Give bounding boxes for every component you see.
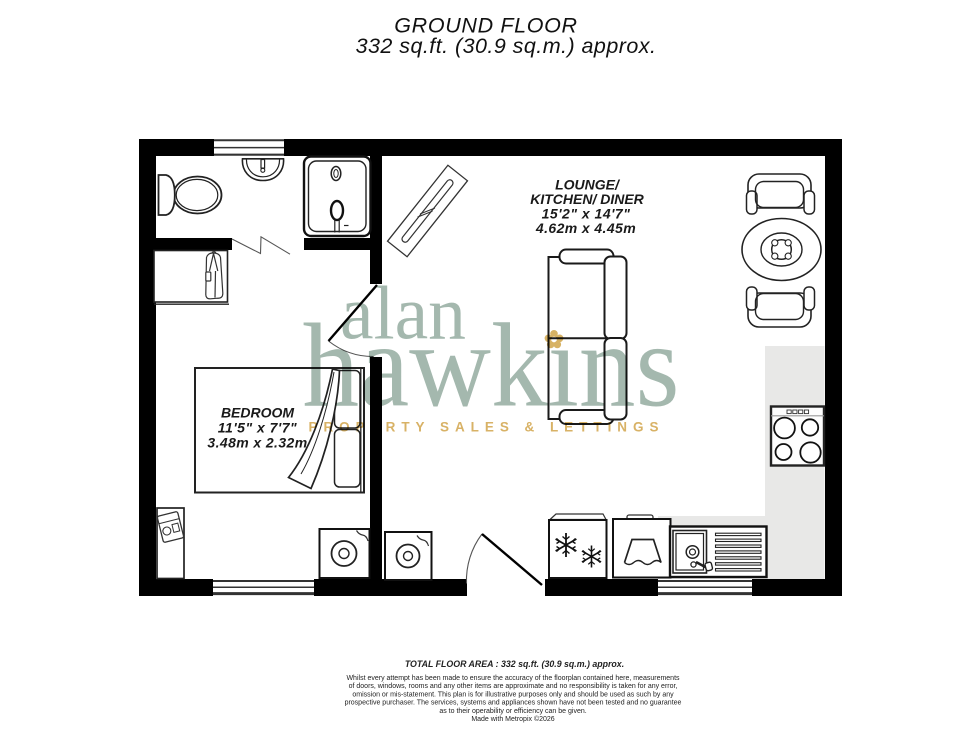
svg-text:as to their operability or eff: as to their operability or efficiency ca… (439, 708, 586, 715)
svg-text:PROPERTY SALES & LETTINGS: PROPERTY SALES & LETTINGS (309, 419, 665, 434)
svg-text:Made with Metropix ©2026: Made with Metropix ©2026 (471, 715, 554, 723)
svg-text:11'5" x 7'7": 11'5" x 7'7" (218, 420, 297, 436)
svg-text:332 sq.ft. (30.9 sq.m.) approx: 332 sq.ft. (30.9 sq.m.) approx. (356, 34, 657, 58)
svg-text:hawkıns: hawkıns (303, 299, 680, 432)
svg-text:prospective purchaser. The ser: prospective purchaser. The services, sys… (345, 700, 682, 707)
svg-text:4.62m x 4.45m: 4.62m x 4.45m (535, 220, 636, 236)
svg-text:omission or mis-statement. Thi: omission or mis-statement. This plan is … (352, 691, 674, 698)
svg-text:BEDROOM: BEDROOM (221, 405, 294, 421)
svg-text:TOTAL FLOOR AREA : 332 sq.ft.: TOTAL FLOOR AREA : 332 sq.ft. (30.9 sq.m… (405, 659, 624, 669)
svg-text:Whilst every attempt has been: Whilst every attempt has been made to en… (346, 675, 680, 682)
svg-text:of doors, windows, rooms and a: of doors, windows, rooms and any other i… (349, 683, 678, 690)
svg-text:3.48m x 2.32m: 3.48m x 2.32m (207, 435, 307, 451)
